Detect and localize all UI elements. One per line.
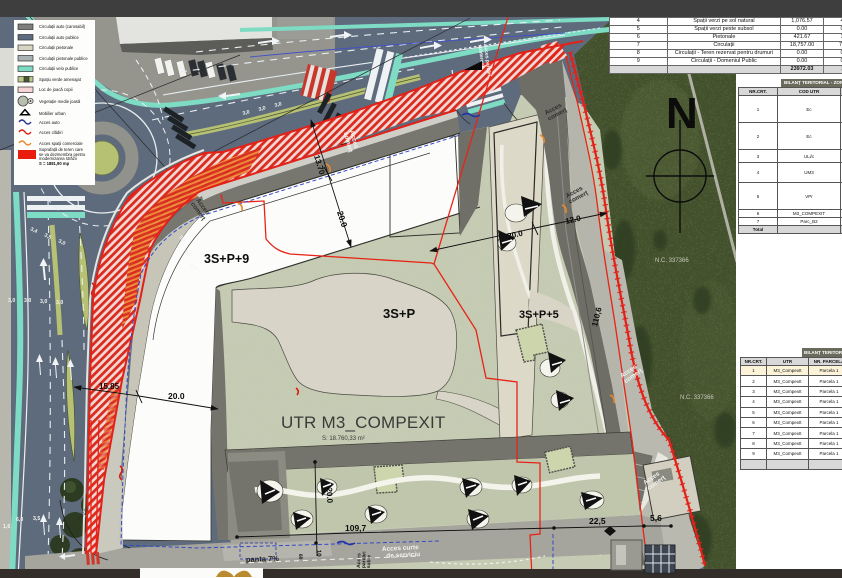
- svg-text:3,0: 3,0: [258, 105, 267, 113]
- svg-text:3,4: 3,4: [29, 226, 38, 235]
- svg-text:Accescomerț: Accescomerț: [565, 184, 590, 206]
- svg-text:20.0: 20.0: [506, 229, 524, 241]
- svg-text:12.0: 12.0: [564, 214, 582, 226]
- svg-text:15.85: 15.85: [99, 382, 120, 391]
- svg-text:Accesparcărisubte: Accesparcărisubte: [356, 551, 373, 569]
- svg-text:Accescomerț: Accescomerț: [619, 362, 644, 385]
- svg-text:3,0: 3,0: [57, 238, 66, 247]
- svg-text:5,6: 5,6: [650, 513, 662, 523]
- svg-text:20.0: 20.0: [335, 210, 349, 229]
- svg-text:10: 10: [315, 550, 321, 558]
- svg-text:3,5: 3,5: [33, 516, 40, 522]
- svg-text:Accescomerț: Accescomerț: [642, 469, 667, 492]
- svg-text:3,0: 3,0: [274, 101, 283, 109]
- svg-text:N: N: [666, 89, 698, 138]
- svg-text:60: 60: [297, 554, 303, 560]
- svg-text:3,0: 3,0: [40, 299, 47, 305]
- svg-text:S: 18.760,33 m²: S: 18.760,33 m²: [322, 436, 365, 442]
- svg-text:N.C. 337366: N.C. 337366: [680, 395, 714, 401]
- svg-text:4.4: 4.4: [183, 249, 192, 258]
- svg-text:3,0: 3,0: [242, 109, 251, 117]
- svg-text:6,0: 6,0: [16, 517, 23, 523]
- svg-text:UTR M3_COMPEXIT: UTR M3_COMPEXIT: [281, 413, 446, 432]
- svg-text:110,6: 110,6: [590, 306, 604, 328]
- svg-text:3S+P+9: 3S+P+9: [204, 252, 249, 266]
- svg-text:13.70: 13.70: [312, 154, 327, 176]
- svg-text:1,6: 1,6: [3, 524, 10, 530]
- svg-text:3,0: 3,0: [56, 300, 63, 306]
- svg-text:Accescomerț: Accescomerț: [342, 130, 360, 153]
- svg-text:3,5: 3,5: [43, 232, 52, 241]
- svg-text:22,5: 22,5: [589, 516, 606, 526]
- svg-text:Acces parcărisubterane: Acces parcărisubterane: [477, 44, 492, 79]
- svg-text:2.0: 2.0: [188, 263, 197, 272]
- svg-text:Accescomerț: Accescomerț: [544, 101, 569, 123]
- svg-text:3S+P: 3S+P: [383, 306, 415, 321]
- svg-text:20.0: 20.0: [168, 391, 185, 401]
- svg-text:3S+P+5: 3S+P+5: [519, 309, 559, 321]
- svg-text:3.8: 3.8: [177, 235, 186, 244]
- svg-text:20.0: 20.0: [325, 487, 335, 504]
- svg-text:109,7: 109,7: [345, 523, 367, 533]
- svg-text:R10.00: R10.00: [77, 505, 91, 522]
- svg-text:3,0: 3,0: [24, 298, 31, 304]
- svg-text:N.C. 337366: N.C. 337366: [655, 258, 689, 264]
- svg-text:Accescomerț: Accescomerț: [189, 197, 212, 222]
- svg-text:3,0: 3,0: [8, 298, 15, 304]
